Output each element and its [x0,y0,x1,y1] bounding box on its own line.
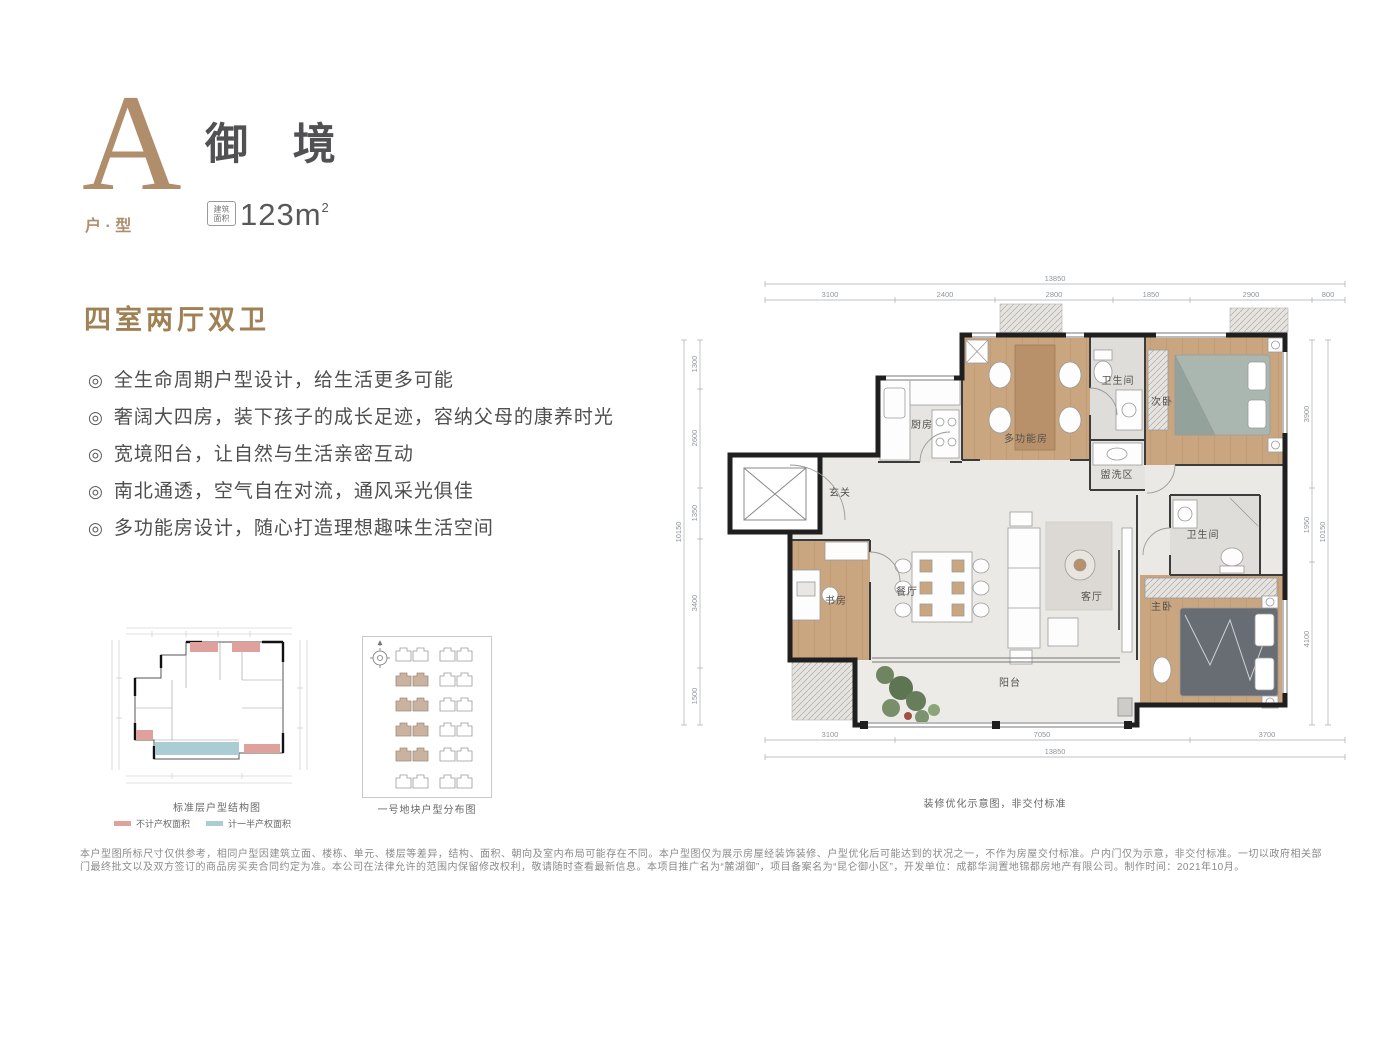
svg-text:1350: 1350 [690,505,699,522]
standard-floor-structure-diagram [92,618,342,803]
svg-text:3900: 3900 [1302,406,1311,423]
feature-item: ◎全生命周期户型设计，给生活更多可能 [88,362,614,399]
feature-item: ◎奢阔大四房，装下孩子的成长足迹，容纳父母的康养时光 [88,399,614,436]
svg-text:多功能房: 多功能房 [1004,432,1048,445]
floor-plan-svg: 玄关 厨房 多功能房 卫生间 盥洗区 次卧 书房 餐厅 客厅 卫生间 主卧 阳台 [670,270,1350,810]
main-floor-plan: 玄关 厨房 多功能房 卫生间 盥洗区 次卧 书房 餐厅 客厅 卫生间 主卧 阳台 [670,270,1350,815]
area-badge-line1: 建筑 [208,205,235,214]
svg-text:1850: 1850 [1143,290,1160,299]
svg-text:13850: 13850 [1045,274,1066,283]
page-title: 御 境 [205,110,353,172]
svg-text:客厅: 客厅 [1081,590,1103,603]
svg-text:书房: 书房 [825,594,847,607]
feature-text: 奢阔大四房，装下孩子的成长足迹，容纳父母的康养时光 [114,399,614,436]
svg-text:2400: 2400 [937,290,954,299]
unit-type-label: 户 · 型 [85,212,177,236]
area-superscript: 2 [322,200,330,215]
mini-plan-outline [135,642,283,759]
bullet-icon: ◎ [88,436,104,473]
area-number: 123m [240,197,322,232]
area-row: 建筑 面积 123m2 [207,197,330,233]
legend-swatch-teal [206,821,223,826]
mini-plan-svg [92,618,342,798]
svg-text:1300: 1300 [690,356,699,373]
legend-label: 计一半产权面积 [228,817,291,830]
svg-text:3700: 3700 [1259,730,1276,739]
site-plan-caption: 一号地块户型分布图 [362,801,492,816]
mini-plan-teal-area [155,742,239,755]
svg-text:1500: 1500 [690,688,699,705]
svg-text:10150: 10150 [1318,522,1327,543]
unit-type-label-text: 户 · 型 [85,212,131,236]
site-plan-svg [362,636,492,798]
svg-text:卫生间: 卫生间 [1187,528,1220,541]
area-value: 123m2 [240,197,330,233]
svg-text:10150: 10150 [674,522,683,543]
bullet-icon: ◎ [88,510,104,547]
svg-text:13850: 13850 [1045,747,1066,756]
unit-type-letter: A [82,74,182,212]
legend-swatch-pink [114,821,131,826]
legend-item-pink: 不计产权面积 [114,817,190,830]
floor-plan-caption: 装修优化示意图，非交付标准 [770,795,1220,810]
disclaimer-text: 本户型图所标尺寸仅供参考，相同户型因建筑立面、楼栋、单元、楼层等差异，结构、面积… [80,848,1322,874]
svg-text:7050: 7050 [1034,730,1051,739]
svg-text:3400: 3400 [690,595,699,612]
svg-text:餐厅: 餐厅 [896,585,918,598]
svg-text:2600: 2600 [690,430,699,447]
legend-label: 不计产权面积 [136,817,190,830]
feature-text: 全生命周期户型设计，给生活更多可能 [114,362,454,399]
svg-text:厨房: 厨房 [911,418,933,431]
mini-plan-caption: 标准层户型结构图 [92,799,342,814]
mini-plan-legend: 不计产权面积 计一半产权面积 [114,817,291,830]
svg-text:阳台: 阳台 [999,676,1021,689]
brochure-page: A 户 · 型 御 境 建筑 面积 123m2 四室两厅双卫 ◎全生命周期户型设… [0,0,1400,1050]
svg-text:1950: 1950 [1302,517,1311,534]
svg-text:卫生间: 卫生间 [1102,374,1135,387]
svg-text:800: 800 [1322,290,1335,299]
area-badge-line2: 面积 [208,214,235,223]
feature-text: 宽境阳台，让自然与生活亲密互动 [114,436,414,473]
svg-text:次卧: 次卧 [1151,395,1173,408]
bullet-icon: ◎ [88,473,104,510]
elevator-core [730,455,820,532]
svg-text:盥洗区: 盥洗区 [1101,469,1134,481]
svg-text:3100: 3100 [822,730,839,739]
feature-text: 南北通透，空气自在对流，通风采光俱佳 [114,473,474,510]
feature-item: ◎多功能房设计，随心打造理想趣味生活空间 [88,510,614,547]
bullet-icon: ◎ [88,399,104,436]
svg-text:玄关: 玄关 [829,486,851,499]
site-distribution-diagram [362,636,492,803]
svg-text:主卧: 主卧 [1151,600,1173,613]
feature-text: 多功能房设计，随心打造理想趣味生活空间 [114,510,494,547]
feature-item: ◎南北通透，空气自在对流，通风采光俱佳 [88,473,614,510]
svg-text:2800: 2800 [1046,290,1063,299]
legend-item-teal: 计一半产权面积 [206,817,291,830]
bullet-icon: ◎ [88,362,104,399]
svg-text:2900: 2900 [1243,290,1260,299]
area-badge: 建筑 面积 [207,201,236,226]
layout-summary-heading: 四室两厅双卫 [84,298,270,337]
svg-text:3100: 3100 [822,290,839,299]
feature-item: ◎宽境阳台，让自然与生活亲密互动 [88,436,614,473]
feature-list: ◎全生命周期户型设计，给生活更多可能 ◎奢阔大四房，装下孩子的成长足迹，容纳父母… [88,362,614,547]
svg-text:4100: 4100 [1302,631,1311,648]
